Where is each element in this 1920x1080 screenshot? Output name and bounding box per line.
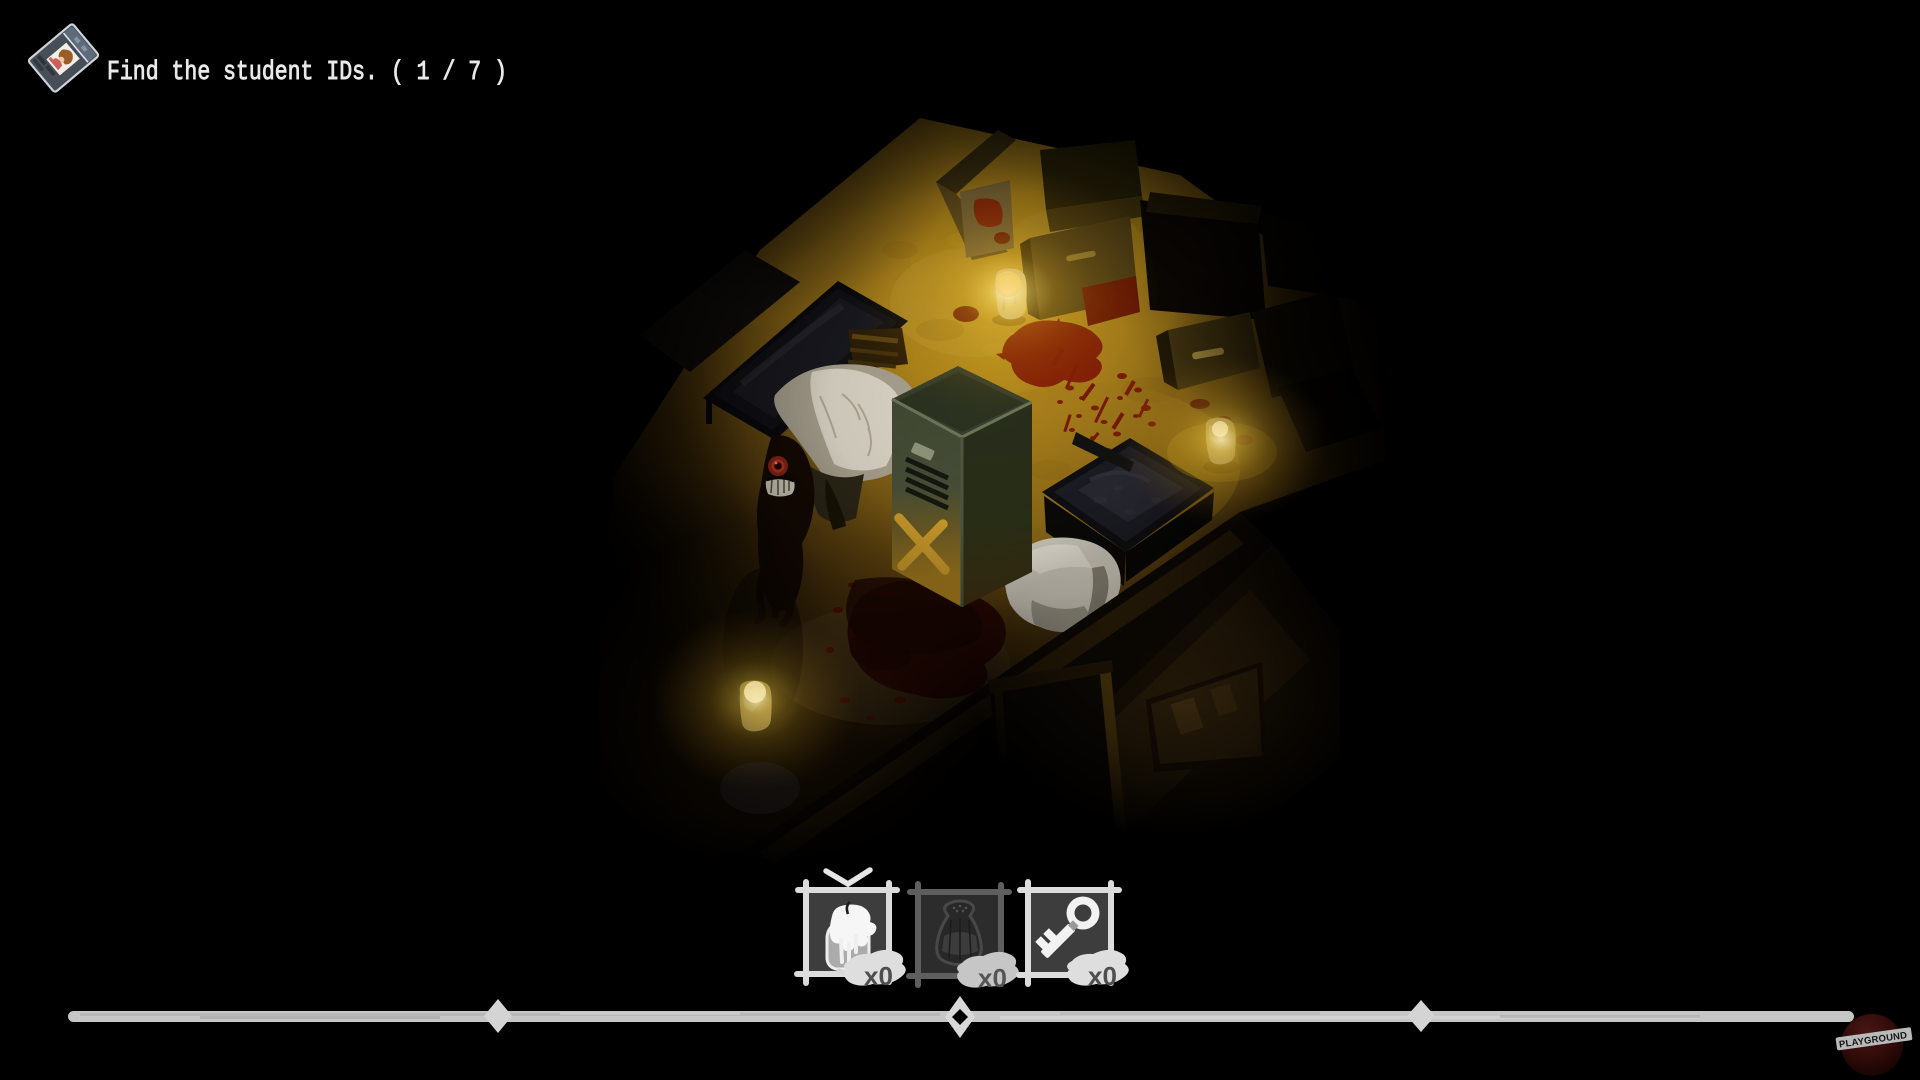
svg-text:Find the student IDs. ( 1 / 7: Find the student IDs. ( 1 / 7 ) [107,58,507,88]
svg-text:x0: x0 [978,963,1007,993]
svg-text:x0: x0 [1088,961,1117,991]
svg-text:x0: x0 [864,961,893,991]
